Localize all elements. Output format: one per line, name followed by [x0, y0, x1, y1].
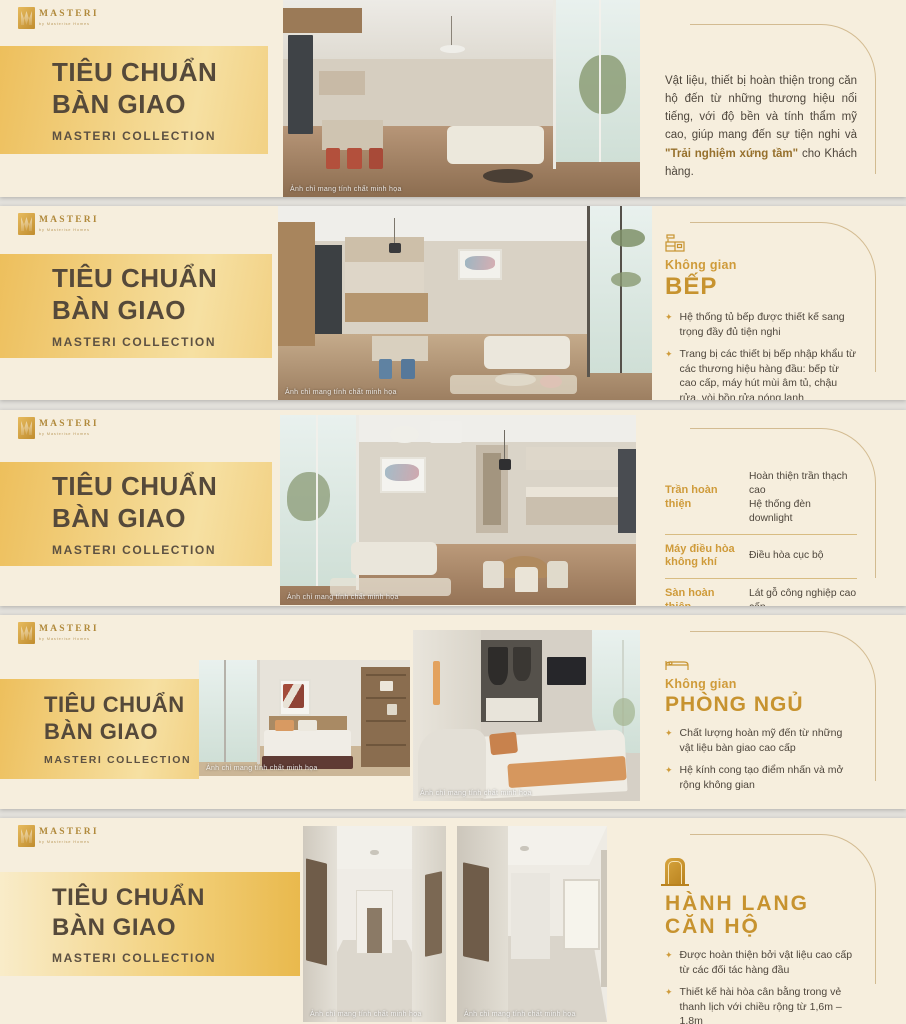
slide-subtitle: MASTERI COLLECTION [52, 335, 272, 349]
kitchen-icon [665, 232, 857, 252]
photo-caption: Ảnh chỉ mang tính chất minh họa [420, 790, 532, 797]
masteri-logo: MASTERI by Masterise Homes [18, 417, 99, 439]
kitchen-feature-list: ✦Hệ thống tủ bếp được thiết kế sang trọn… [665, 310, 857, 400]
bedroom-photo-1: Ảnh chỉ mang tính chất minh họa [199, 660, 410, 776]
spec-row: Máy điều hòa không khí Điều hòa cục bộ [665, 535, 857, 580]
bullet-star-icon: ✦ [665, 985, 673, 1024]
bedroom-panel: Không gian PHÒNG NGỦ ✦Chất lượng hoàn mỹ… [665, 651, 857, 800]
list-item: ✦Được hoàn thiện bởi vật liệu cao cấp từ… [665, 948, 857, 977]
living-room-photo: Ảnh chỉ mang tính chất minh họa [283, 0, 640, 197]
list-item: ✦Hệ kính cong tạo điểm nhấn và mở rộng k… [665, 763, 857, 792]
slide-bedroom: MASTERI by Masterise Homes TIÊU CHUẨN BÀ… [0, 615, 906, 809]
slide-title: TIÊU CHUẨN BÀN GIAO [52, 57, 268, 120]
masteri-logo-icon [18, 622, 35, 644]
slide-specifications: MASTERI by Masterise Homes TIÊU CHUẨN BÀ… [0, 410, 906, 606]
title-band: TIÊU CHUẨN BÀN GIAO MASTERI COLLECTION [0, 462, 272, 566]
masteri-logo-tagline: by Masterise Homes [39, 21, 99, 26]
panel-eyebrow: Không gian [665, 258, 857, 272]
highlight-text: "Trải nghiệm xứng tầm" [665, 148, 798, 160]
slide-title: TIÊU CHUẨN BÀN GIAO [52, 263, 272, 326]
photo-caption: Ảnh chỉ mang tính chất minh họa [464, 1011, 576, 1018]
door-icon [665, 858, 685, 884]
slide-subtitle: MASTERI COLLECTION [44, 754, 199, 766]
panel-heading: PHÒNG NGỦ [665, 693, 857, 716]
living-dining-photo: Ảnh chỉ mang tính chất minh họa [280, 415, 636, 605]
bullet-star-icon: ✦ [665, 948, 673, 977]
spec-row: Trần hoàn thiện Hoàn thiện trần thạch ca… [665, 462, 857, 535]
list-item: ✦Thiết kế hài hòa cân bằng trong vẻ than… [665, 985, 857, 1024]
intro-panel: Vật liệu, thiết bị hoàn thiện trong căn … [665, 72, 857, 181]
masteri-logo-icon [18, 825, 35, 847]
bedroom-feature-list: ✦Chất lượng hoàn mỹ đến từ những vật liệ… [665, 726, 857, 792]
spec-value: Điều hòa cục bộ [749, 549, 823, 563]
slide-subtitle: MASTERI COLLECTION [52, 129, 268, 143]
bullet-star-icon: ✦ [665, 726, 673, 755]
spec-table: Trần hoàn thiện Hoàn thiện trần thạch ca… [665, 462, 857, 606]
slide-title: TIÊU CHUẨN BÀN GIAO [52, 471, 272, 534]
slide-kitchen: MASTERI by Masterise Homes TIÊU CHUẨN BÀ… [0, 206, 906, 400]
hallway-panel: HÀNH LANG CĂN HỘ ✦Được hoàn thiện bởi vậ… [665, 858, 857, 1024]
bullet-star-icon: ✦ [665, 763, 673, 792]
hallway-feature-list: ✦Được hoàn thiện bởi vật liệu cao cấp từ… [665, 948, 857, 1024]
bedroom-photo-2: Ảnh chỉ mang tính chất minh họa [413, 630, 640, 801]
panel-heading: HÀNH LANG CĂN HỘ [665, 892, 857, 938]
masteri-logo: MASTERI by Masterise Homes [18, 7, 99, 29]
photo-caption: Ảnh chỉ mang tính chất minh họa [310, 1011, 422, 1018]
title-band: TIÊU CHUẨN BÀN GIAO MASTERI COLLECTION [0, 254, 272, 358]
intro-paragraph: Vật liệu, thiết bị hoàn thiện trong căn … [665, 72, 857, 181]
panel-eyebrow: Không gian [665, 677, 857, 691]
masteri-logo: MASTERI by Masterise Homes [18, 825, 99, 847]
list-item: ✦Hệ thống tủ bếp được thiết kế sang trọn… [665, 310, 857, 339]
bullet-star-icon: ✦ [665, 347, 673, 400]
bed-icon [665, 651, 857, 671]
masteri-logo-icon [18, 417, 35, 439]
kitchen-panel: Không gian BẾP ✦Hệ thống tủ bếp được thi… [665, 232, 857, 400]
list-item: ✦Chất lượng hoàn mỹ đến từ những vật liệ… [665, 726, 857, 755]
spec-label: Trần hoàn thiện [665, 484, 741, 512]
masteri-logo: MASTERI by Masterise Homes [18, 622, 99, 644]
spec-value: Hoàn thiện trần thạch cao Hệ thống đèn d… [749, 470, 857, 526]
spec-value: Lát gỗ công nghiệp cao cấp [749, 587, 857, 606]
slide-title: TIÊU CHUẨN BÀN GIAO [52, 883, 300, 942]
title-band: TIÊU CHUẨN BÀN GIAO MASTERI COLLECTION [0, 46, 268, 154]
slide-hallway: MASTERI by Masterise Homes TIÊU CHUẨN BÀ… [0, 818, 906, 1024]
spec-label: Máy điều hòa không khí [665, 543, 741, 571]
slide-title: TIÊU CHUẨN BÀN GIAO [44, 692, 199, 746]
masteri-logo-icon [18, 213, 35, 235]
title-band: TIÊU CHUẨN BÀN GIAO MASTERI COLLECTION [0, 679, 199, 779]
slide-subtitle: MASTERI COLLECTION [52, 543, 272, 557]
kitchen-photo: Ảnh chỉ mang tính chất minh họa [278, 206, 652, 400]
hallway-photo-1: Ảnh chỉ mang tính chất minh họa [303, 826, 446, 1022]
spec-row: Sàn hoàn thiện Lát gỗ công nghiệp cao cấ… [665, 579, 857, 606]
masteri-logo-name: MASTERI [39, 10, 99, 20]
masteri-logo: MASTERI by Masterise Homes [18, 213, 99, 235]
slide-subtitle: MASTERI COLLECTION [52, 951, 300, 965]
photo-caption: Ảnh chỉ mang tính chất minh họa [285, 389, 397, 396]
list-item: ✦Trang bị các thiết bị bếp nhập khẩu từ … [665, 347, 857, 400]
photo-caption: Ảnh chỉ mang tính chất minh họa [206, 765, 318, 772]
photo-caption: Ảnh chỉ mang tính chất minh họa [290, 186, 402, 193]
hallway-photo-2: Ảnh chỉ mang tính chất minh họa [457, 826, 607, 1022]
bullet-star-icon: ✦ [665, 310, 673, 339]
panel-heading: BẾP [665, 274, 857, 300]
photo-caption: Ảnh chỉ mang tính chất minh họa [287, 594, 399, 601]
title-band: TIÊU CHUẨN BÀN GIAO MASTERI COLLECTION [0, 872, 300, 976]
slide-overview: MASTERI by Masterise Homes TIÊU CHUẨN BÀ… [0, 0, 906, 197]
masteri-logo-icon [18, 7, 35, 29]
spec-label: Sàn hoàn thiện [665, 587, 741, 606]
